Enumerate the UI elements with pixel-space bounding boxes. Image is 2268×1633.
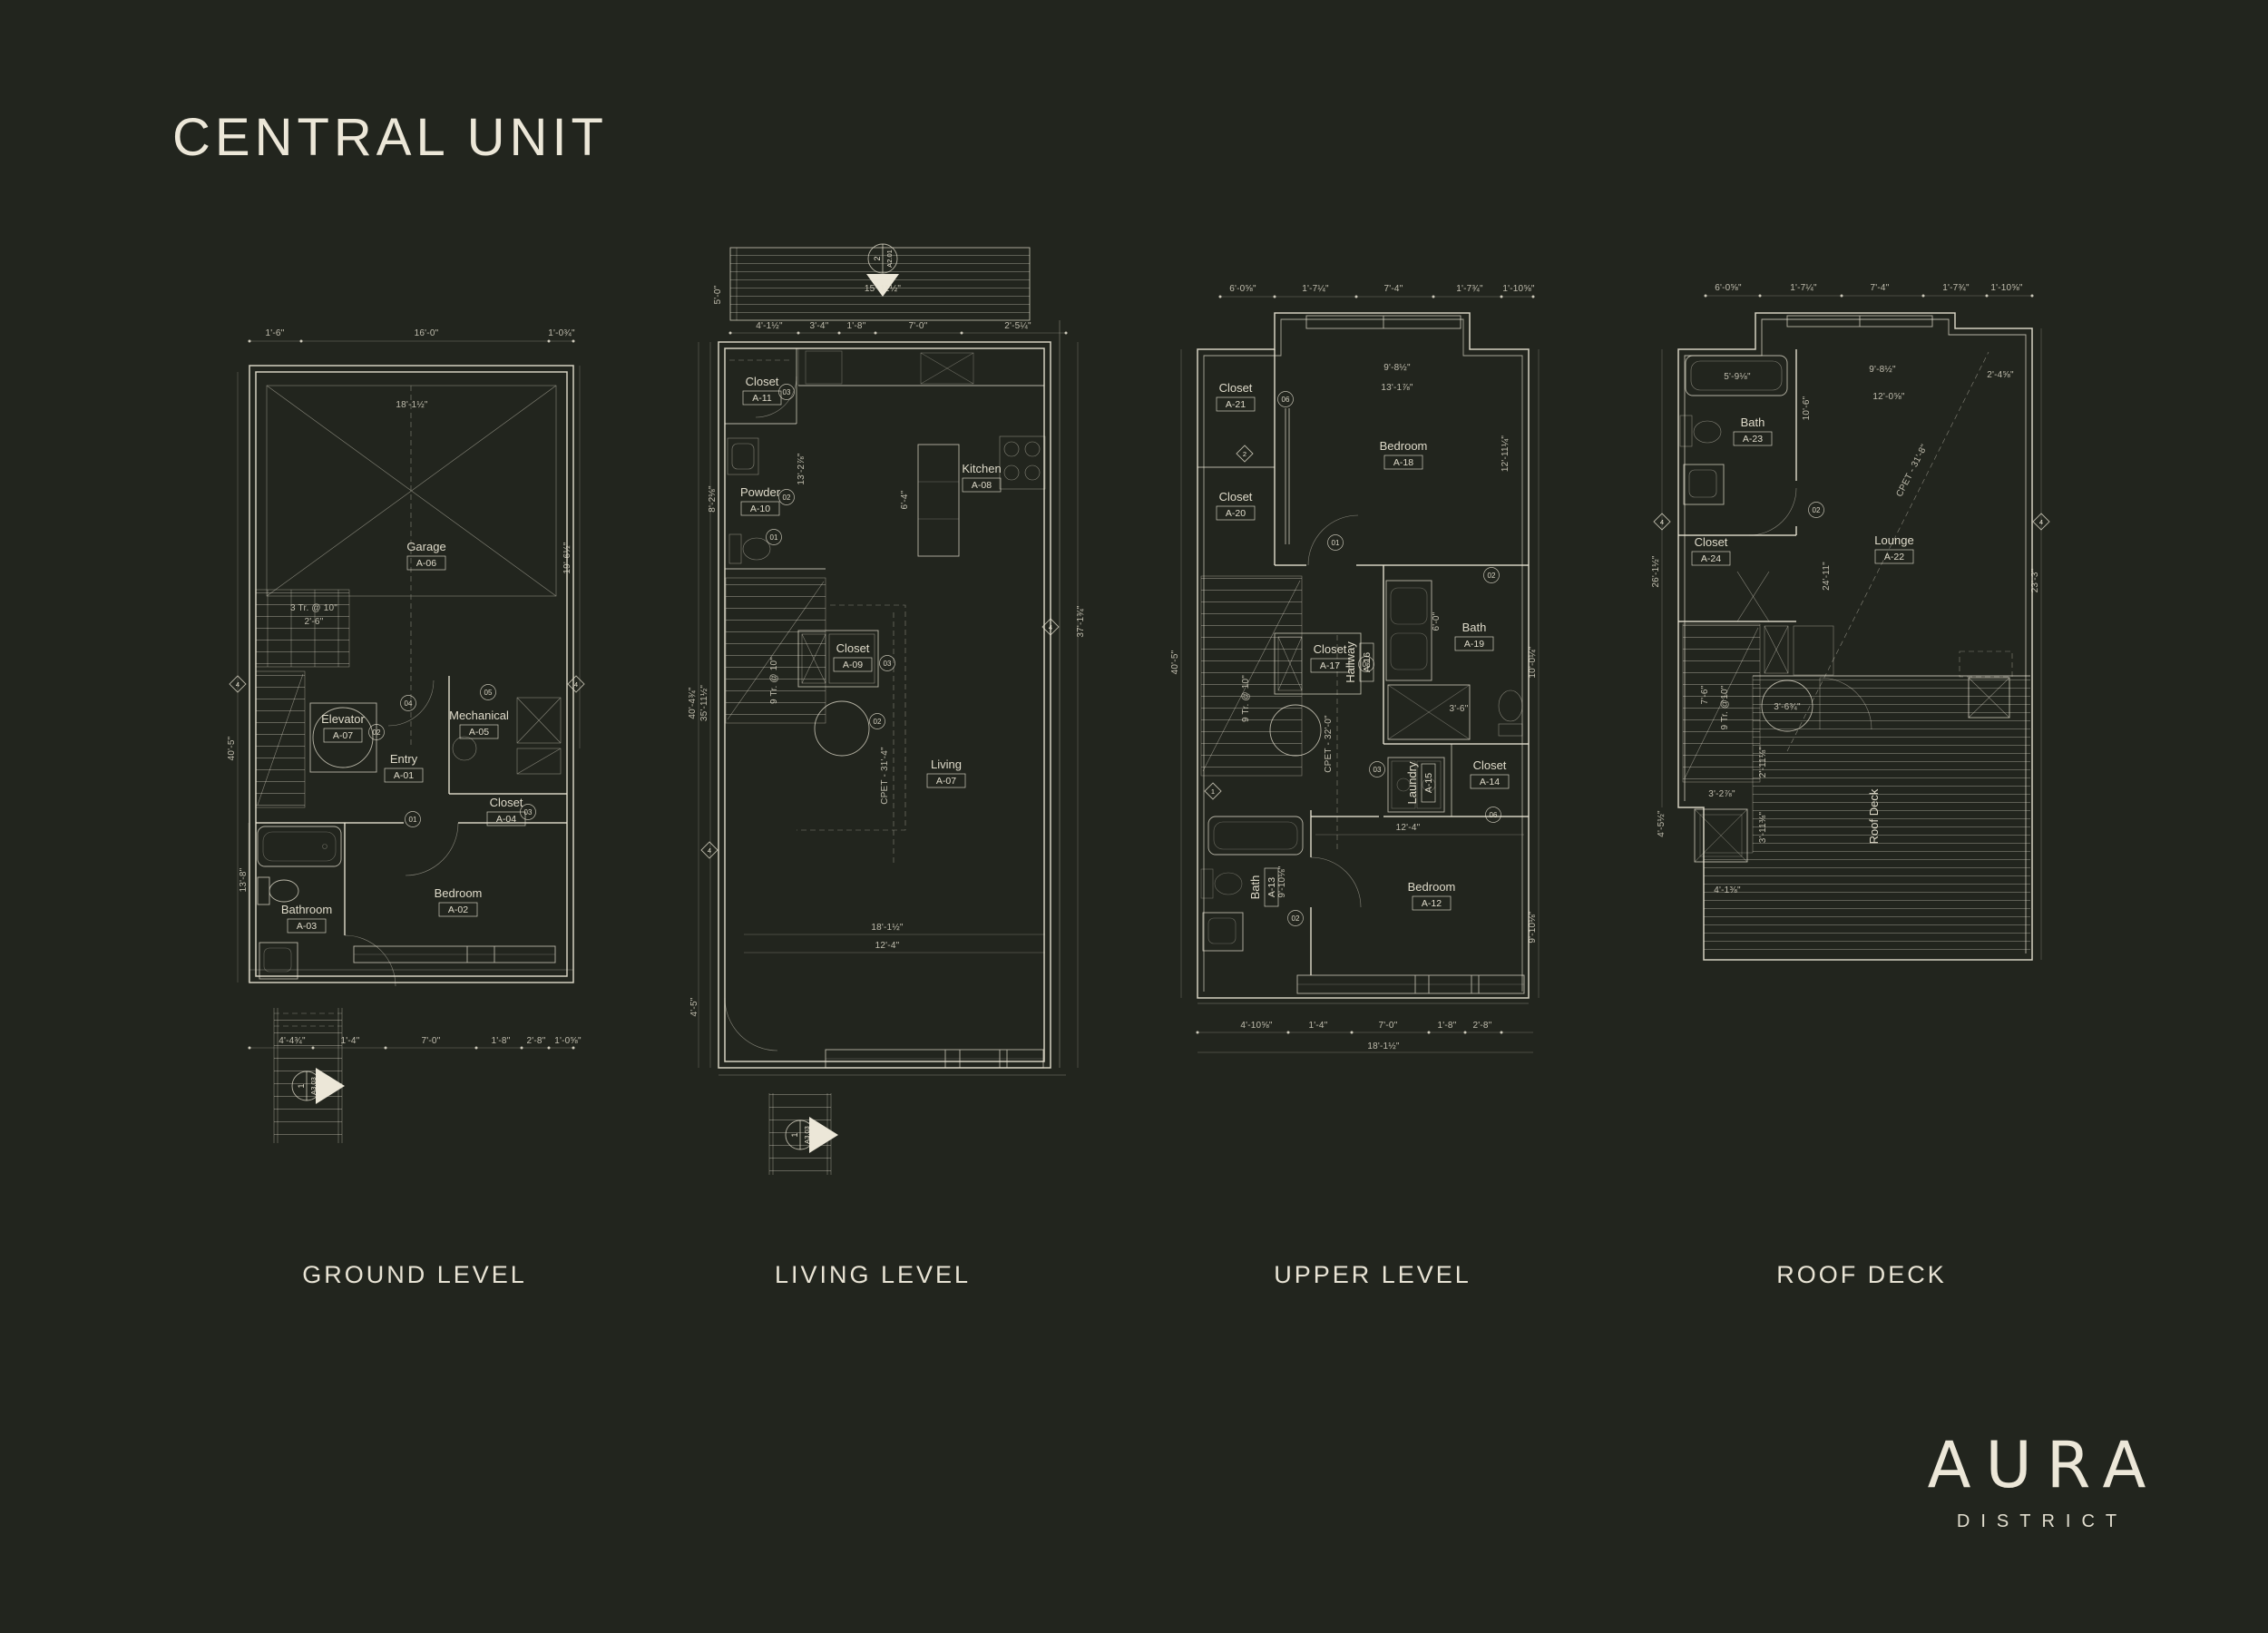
window-band-bottom: [1297, 975, 1524, 993]
svg-text:A-17: A-17: [1320, 660, 1340, 671]
svg-text:Bedroom: Bedroom: [1408, 880, 1456, 894]
svg-text:A-15: A-15: [1423, 773, 1434, 793]
dim-label: 9 Tr. @10": [1720, 685, 1730, 729]
svg-text:02: 02: [373, 728, 381, 737]
dim-label: 10'-6": [1802, 396, 1812, 420]
landing-drum: [815, 701, 869, 756]
svg-text:01: 01: [409, 816, 417, 824]
dim-label: CPET - 31'-4": [880, 747, 890, 805]
door-swing: [725, 998, 777, 1051]
svg-text:Powder: Powder: [740, 485, 781, 499]
svg-text:Hallway: Hallway: [1344, 641, 1357, 683]
svg-text:A-04: A-04: [496, 814, 516, 825]
svg-text:Bathroom: Bathroom: [281, 903, 332, 916]
dim-label: 1'-7¾": [1456, 284, 1483, 294]
svg-text:4: 4: [236, 680, 240, 689]
svg-text:A-22: A-22: [1884, 552, 1904, 562]
svg-text:01: 01: [770, 533, 778, 542]
svg-text:A-03: A-03: [297, 921, 317, 932]
dim-label: 40'-5": [227, 736, 237, 760]
window-band-top: [1787, 316, 1932, 327]
dim-label: 4'-10⅝": [1240, 1021, 1272, 1031]
elevation-diamond: 1: [1205, 783, 1221, 799]
dim-label: 2'-8": [527, 1036, 546, 1046]
dim-label: 1'-0⅝": [554, 1036, 582, 1046]
dim-label: 13'-2⅞": [797, 453, 807, 484]
dim-label: CPET - 31'-8": [1894, 443, 1930, 499]
dim-label: 40'-4¾": [688, 687, 698, 719]
dim-label: 8'-2⅛": [708, 485, 718, 513]
svg-text:A-09: A-09: [843, 660, 863, 670]
dim-label: 18'-1½": [396, 400, 427, 410]
elevation-diamond: 2: [1237, 445, 1253, 462]
room-label-laundry: Laundry A-15: [1405, 761, 1435, 804]
presentation-sheet: CENTRAL UNIT 1'-6" 16'-0" 1'-0¾": [0, 0, 2268, 1633]
svg-text:A-24: A-24: [1701, 553, 1721, 564]
bath-vanity-double: [1386, 581, 1432, 680]
svg-text:A-21: A-21: [1226, 399, 1246, 410]
svg-text:Closet: Closet: [1695, 535, 1728, 549]
svg-text:A-19: A-19: [1464, 639, 1484, 650]
room-label-closet-a20: Closet A-20: [1217, 490, 1255, 520]
kitchen-counter: [798, 348, 1044, 386]
dim-label: 7'-0": [909, 321, 928, 331]
door-tag: 03: [880, 656, 895, 671]
dim-label: CPET - 32'-0": [1324, 715, 1334, 773]
dim-label: 37'-1¾": [1076, 605, 1086, 637]
svg-text:Bedroom: Bedroom: [1380, 439, 1428, 453]
svg-text:4: 4: [1049, 623, 1052, 631]
dim-label: 3'-11⅜": [1758, 812, 1768, 844]
room-label-mechanical: Mechanical A-05: [449, 709, 509, 738]
svg-text:A-16: A-16: [1362, 652, 1373, 672]
dim-label: 4'-4¾": [279, 1036, 306, 1046]
window-band-top: [1306, 316, 1461, 328]
svg-text:06: 06: [1282, 396, 1290, 404]
room-label-bath-a13: Bath A-13: [1248, 868, 1278, 906]
dim-label: 1'-4": [1309, 1021, 1328, 1031]
svg-text:03: 03: [1374, 766, 1382, 774]
window-band: [354, 946, 555, 963]
dim-label: 26'-1½": [1651, 555, 1661, 587]
dim-label: 9'-10⅛": [1528, 911, 1538, 943]
svg-text:04: 04: [405, 699, 413, 708]
dim-label: 2'-4⅝": [1987, 370, 2014, 380]
dim-label: 12'-11¼": [1500, 435, 1510, 472]
svg-text:Closet: Closet: [836, 641, 870, 655]
dim-label: 3'-2⅞": [1708, 789, 1735, 799]
room-label-closet-a09: Closet A-09: [834, 641, 872, 671]
dim-label: 6'-4": [900, 490, 910, 509]
dim-label: 9'-10⅛": [1277, 865, 1287, 897]
dim-label: 18'-1½": [871, 923, 903, 933]
svg-text:A-20: A-20: [1226, 508, 1246, 519]
floorplan-living-level: 2 A2.01 15'-11½" 5'-0" 4'-1½" 3'-4" 1'-8…: [689, 231, 1093, 1175]
deck-label: Roof Deck: [1867, 788, 1881, 844]
svg-text:A-06: A-06: [416, 558, 436, 569]
dim-label: 12'-0⅝": [1872, 392, 1904, 402]
dim-label: 6'-0": [1432, 611, 1442, 631]
door-swing: [1749, 488, 1796, 535]
svg-text:02: 02: [1813, 506, 1821, 514]
svg-text:02: 02: [1488, 572, 1496, 580]
dim-label: 1'-10⅝": [1502, 284, 1534, 294]
dim-label: 2'-5¼": [1004, 320, 1031, 331]
room-label-lounge: Lounge A-22: [1874, 533, 1913, 563]
svg-text:A-07: A-07: [936, 776, 956, 787]
svg-text:Closet: Closet: [1473, 758, 1507, 772]
dim-row-top: 6'-0⅝" 1'-7¼" 7'-4" 1'-7¾" 1'-10⅝": [1705, 282, 2034, 298]
svg-text:Mechanical: Mechanical: [449, 709, 509, 722]
dim-label: 1'-0¾": [548, 328, 575, 338]
caption-roof-deck: ROOF DECK: [1776, 1261, 1947, 1289]
svg-text:Bath: Bath: [1462, 621, 1487, 634]
dim-label: 15'-11½": [865, 284, 901, 294]
dim-label: 1'-8": [1438, 1021, 1457, 1031]
svg-text:Entry: Entry: [390, 752, 418, 766]
svg-text:03: 03: [884, 660, 892, 668]
floorplan-roof-deck: 6'-0⅝" 1'-7¼" 7'-4" 1'-7¾" 1'-10⅝" 5'-9⅛…: [1651, 272, 2050, 1012]
dim-label: 9 Tr. @ 10": [769, 657, 779, 704]
dim-label: 3'-6": [1450, 704, 1469, 714]
svg-text:A-01: A-01: [394, 770, 414, 781]
dim-label: 40'-5": [1170, 650, 1180, 674]
stove: [1000, 436, 1045, 489]
room-label-closet: Closet A-04: [487, 796, 525, 826]
dim-label: 3'-4": [810, 321, 829, 331]
dim-label: 4'-5½": [1657, 810, 1667, 837]
room-label-closet-a24: Closet A-24: [1692, 535, 1730, 565]
room-label-entry: Entry A-01: [385, 752, 423, 782]
dim-label: 1'-7¼": [1790, 282, 1817, 293]
dim-label: 9'-8½": [1383, 363, 1411, 373]
svg-text:A-13: A-13: [1266, 877, 1277, 897]
svg-text:Closet: Closet: [1219, 490, 1253, 504]
svg-text:4: 4: [2039, 518, 2043, 526]
dim-label: 1'-7¼": [1302, 283, 1329, 294]
dim-label: 9 Tr. @ 10": [1241, 675, 1251, 722]
dim-label: 1'-8": [847, 321, 866, 331]
room-label-elevator: Elevator A-07: [321, 712, 365, 742]
dim-label: 2'-6": [305, 617, 324, 627]
floorplan-upper-level: 6'-0⅝" 1'-7¼" 7'-4" 1'-7¾" 1'-10⅝": [1170, 272, 1551, 1061]
dim-row-bottom: 4'-10⅝" 1'-4" 7'-0" 1'-8" 2'-8" 18'-1½": [1197, 1021, 1534, 1052]
svg-text:02: 02: [874, 718, 882, 726]
svg-text:Bath: Bath: [1741, 416, 1765, 429]
dim-label: 4'-1⅜": [1714, 885, 1741, 895]
svg-text:A-14: A-14: [1480, 777, 1500, 787]
svg-text:A-02: A-02: [448, 905, 468, 915]
room-label-bedroom-a12: Bedroom A-12: [1408, 880, 1456, 910]
dim-label: 18'-1½": [1367, 1041, 1399, 1051]
dim-label: 9'-8½": [1869, 365, 1896, 375]
interior-stair: [726, 578, 905, 830]
door-tag: 01: [767, 530, 782, 545]
door-tag: 01: [406, 812, 421, 827]
svg-text:Garage: Garage: [406, 540, 445, 553]
interior-stair: [1201, 576, 1302, 776]
svg-text:06: 06: [1490, 811, 1498, 819]
room-label-closet-a21: Closet A-21: [1217, 381, 1255, 411]
svg-text:Closet: Closet: [490, 796, 523, 809]
dim-label: 24'-11": [1822, 562, 1832, 591]
room-label-bedroom: Bedroom A-02: [435, 886, 483, 916]
room-label-bathroom: Bathroom A-03: [281, 903, 332, 933]
svg-text:02: 02: [1292, 914, 1300, 923]
svg-text:Elevator: Elevator: [321, 712, 365, 726]
svg-text:A-05: A-05: [469, 727, 489, 738]
svg-text:Laundry: Laundry: [1405, 761, 1419, 804]
dim-label: 3 Tr. @ 10": [290, 603, 337, 613]
svg-text:A-11: A-11: [752, 393, 772, 404]
dim-label: 35'-11½": [699, 685, 709, 721]
room-label-garage: Garage A-06: [406, 540, 445, 570]
section-number: 1: [297, 1083, 306, 1088]
door-tag: 02: [870, 714, 885, 729]
kitchen-island: [918, 445, 959, 556]
dim-label: 5'-9⅛": [1724, 372, 1751, 382]
svg-text:1: 1: [1211, 787, 1215, 796]
svg-text:A-18: A-18: [1393, 457, 1413, 468]
dim-label: 6'-0⅝": [1229, 284, 1256, 294]
svg-text:4: 4: [708, 846, 711, 855]
page-title: CENTRAL UNIT: [172, 107, 608, 168]
door-swing: [1311, 857, 1361, 907]
dim-label: 10'-0¼": [1527, 646, 1538, 678]
door-tag: 06: [1278, 392, 1294, 407]
svg-text:Closet: Closet: [1314, 642, 1347, 656]
dim-label: 2'-8": [1473, 1021, 1492, 1031]
room-label-bath-a19: Bath A-19: [1455, 621, 1493, 650]
caption-living-level: LIVING LEVEL: [775, 1261, 971, 1289]
dim-label: 12'-4": [1396, 823, 1421, 833]
svg-text:Bath: Bath: [1248, 875, 1262, 900]
dim-label: 13'-1⅞": [1381, 383, 1413, 393]
door-tag: 02: [1484, 568, 1500, 583]
svg-text:A-12: A-12: [1422, 898, 1442, 909]
room-label-bath-a23: Bath A-23: [1734, 416, 1772, 445]
svg-text:A-10: A-10: [750, 504, 770, 514]
garage-door-swing: [267, 386, 556, 748]
svg-text:2: 2: [1243, 450, 1246, 458]
dim-label: 7'-6": [1700, 685, 1710, 704]
powder-room: [725, 438, 826, 569]
caption-ground-level: GROUND LEVEL: [302, 1261, 527, 1289]
storage-grid: [256, 590, 349, 667]
dim-label: 6'-0⅝": [1715, 283, 1742, 293]
wardrobe-rod: [1286, 408, 1289, 544]
dim-label: 19'-6½": [562, 542, 572, 573]
room-label-living: Living A-07: [927, 758, 965, 787]
svg-text:Closet: Closet: [746, 375, 779, 388]
dim-label: 13'-8": [239, 867, 249, 892]
dim-label: 1'-6": [266, 328, 285, 338]
door-tag: 02: [779, 490, 795, 505]
dim-label: 4'-1½": [756, 321, 783, 331]
interior-stair: [256, 671, 305, 807]
svg-text:Living: Living: [931, 758, 962, 771]
brand-subtitle: DISTRICT: [1913, 1511, 2161, 1532]
dim-row-band: 4'-1½" 3'-4" 1'-8" 7'-0" 2'-5¼": [729, 320, 1068, 335]
room-label-kitchen: Kitchen A-08: [962, 462, 1001, 492]
svg-text:Closet: Closet: [1219, 381, 1253, 395]
dim-label: 23'-3": [2030, 568, 2040, 592]
door-tag: 02: [1809, 503, 1824, 518]
closet-wardrobe: [1765, 626, 1833, 675]
door-swing: [406, 823, 458, 875]
dim-label: 2'-11⅛": [1758, 747, 1768, 778]
dim-label: 1'-7¾": [1942, 283, 1970, 293]
elevation-diamond: 4: [701, 842, 718, 858]
closet-a24: [1678, 572, 1796, 621]
door-tag: 01: [1328, 535, 1344, 551]
svg-text:02: 02: [783, 494, 791, 502]
svg-text:Kitchen: Kitchen: [962, 462, 1001, 475]
dim-label: 1'-4": [341, 1036, 360, 1046]
dim-label: 7'-0": [1379, 1021, 1398, 1031]
dim-label: 5'-0": [713, 285, 723, 304]
dim-row-top: 6'-0⅝" 1'-7¼" 7'-4" 1'-7¾" 1'-10⅝": [1219, 283, 1535, 298]
room-label-powder: Powder A-10: [740, 485, 781, 515]
door-tag: 06: [1486, 807, 1501, 823]
dim-label: 12'-4": [875, 941, 900, 951]
door-swing: [345, 935, 396, 986]
door-tag: 05: [481, 685, 496, 700]
door-tag: 03: [1370, 762, 1385, 777]
dim-label: 1'-8": [492, 1036, 511, 1046]
svg-text:4: 4: [574, 680, 578, 689]
dim-label: 7'-4": [1871, 283, 1890, 293]
door-tag: 02: [1288, 911, 1304, 926]
dim-row-top: 1'-6" 16'-0" 1'-0¾": [249, 328, 575, 343]
svg-text:Lounge: Lounge: [1874, 533, 1913, 547]
dim-label: 1'-10⅝": [1990, 283, 2022, 293]
section-number: 1: [790, 1132, 799, 1137]
floorplan-ground-level: 1'-6" 16'-0" 1'-0¾" 18'-1½" 3 Tr. @ 10" …: [227, 322, 585, 1170]
svg-text:01: 01: [1332, 539, 1340, 547]
dim-label: 16'-0": [415, 328, 439, 338]
brand-name: AURA: [1913, 1433, 2161, 1497]
svg-text:03: 03: [783, 388, 791, 396]
svg-text:A-23: A-23: [1743, 434, 1763, 445]
dim-label: 7'-0": [422, 1036, 441, 1046]
window-band: [826, 1050, 1043, 1068]
svg-text:A-07: A-07: [333, 730, 353, 741]
svg-text:A-08: A-08: [972, 480, 992, 491]
room-label-bedroom-a18: Bedroom A-18: [1380, 439, 1428, 469]
room-label-closet-a14: Closet A-14: [1471, 758, 1509, 788]
room-label-closet-a11: Closet A-11: [743, 375, 781, 405]
svg-text:05: 05: [484, 689, 493, 697]
dim-label: 7'-4": [1384, 284, 1403, 294]
toilet: [1499, 690, 1522, 736]
door-tag: 04: [401, 696, 416, 711]
dim-label: 4'-5": [689, 997, 699, 1016]
caption-upper-level: UPPER LEVEL: [1274, 1261, 1471, 1289]
svg-text:4: 4: [1660, 518, 1664, 526]
entry-stoop-stairs: [274, 1008, 342, 1143]
brand-logo: AURA DISTRICT: [1913, 1433, 2161, 1532]
elevation-diamond: 4: [568, 676, 584, 692]
svg-text:Bedroom: Bedroom: [435, 886, 483, 900]
